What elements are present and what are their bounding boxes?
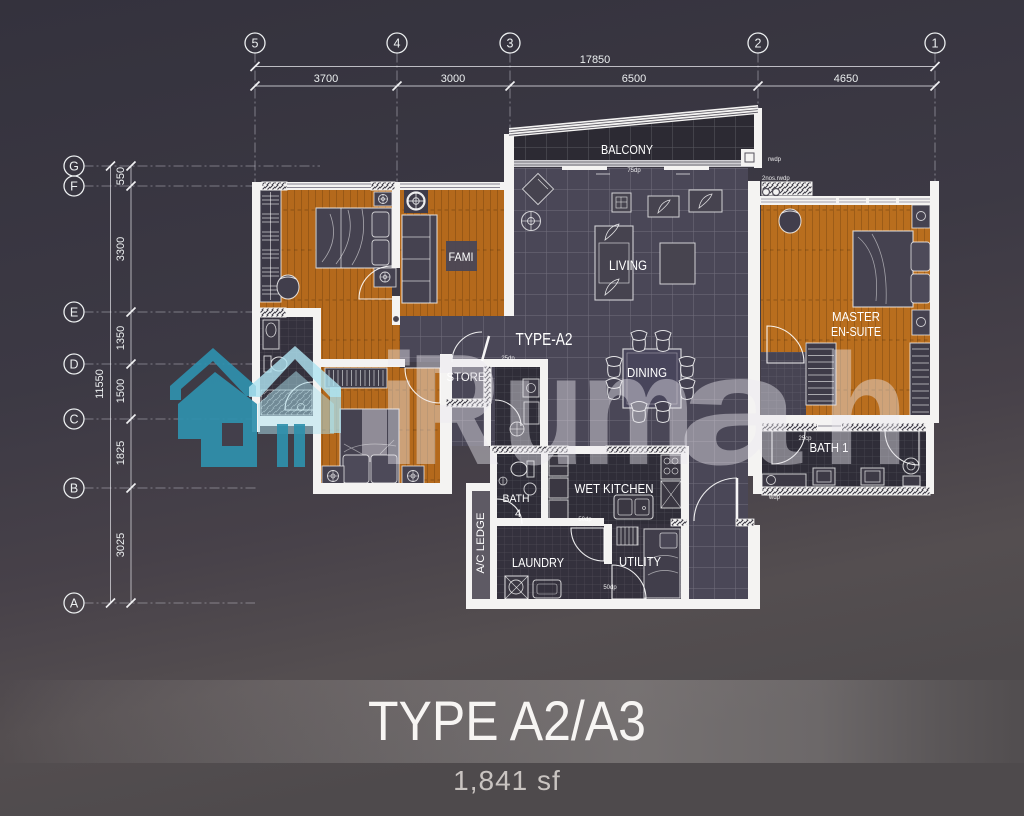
svg-text:LAUNDRY: LAUNDRY xyxy=(512,555,564,570)
svg-text:11550: 11550 xyxy=(94,369,106,399)
svg-text:A: A xyxy=(70,597,79,611)
svg-text:17850: 17850 xyxy=(580,54,611,66)
svg-text:D: D xyxy=(69,358,78,372)
svg-text:1: 1 xyxy=(932,37,939,51)
svg-text:a: a xyxy=(678,322,803,498)
svg-text:3025: 3025 xyxy=(115,533,127,557)
svg-text:6500: 6500 xyxy=(622,73,646,85)
svg-text:4: 4 xyxy=(515,508,521,520)
svg-text:5: 5 xyxy=(252,37,259,51)
svg-text:50dp: 50dp xyxy=(578,517,592,523)
svg-text:3: 3 xyxy=(507,37,514,51)
svg-text:3000: 3000 xyxy=(441,73,465,85)
svg-text:E: E xyxy=(70,306,78,320)
svg-text:2: 2 xyxy=(755,37,762,51)
svg-text:FAMI: FAMI xyxy=(449,252,474,264)
svg-text:UTILITY: UTILITY xyxy=(619,554,661,569)
svg-text:1,841 sf: 1,841 sf xyxy=(453,765,561,796)
svg-text:G: G xyxy=(69,160,79,174)
svg-text:550: 550 xyxy=(115,167,127,185)
svg-text:u: u xyxy=(502,322,585,498)
svg-text:1825: 1825 xyxy=(115,441,127,465)
svg-text:LIVING: LIVING xyxy=(609,258,647,273)
svg-text:TYPE A2/A3: TYPE A2/A3 xyxy=(368,689,646,752)
svg-text:R: R xyxy=(408,322,501,498)
svg-text:4: 4 xyxy=(394,37,401,51)
svg-text:1350: 1350 xyxy=(115,326,127,350)
svg-text:h: h xyxy=(822,322,908,498)
svg-text:F: F xyxy=(70,180,78,194)
svg-text:C: C xyxy=(69,413,78,427)
svg-text:3300: 3300 xyxy=(115,237,127,261)
svg-text:2nos.rwdp: 2nos.rwdp xyxy=(762,176,790,182)
svg-text:BALCONY: BALCONY xyxy=(601,142,653,157)
svg-text:rwdp: rwdp xyxy=(768,157,782,163)
svg-text:75dp: 75dp xyxy=(627,168,641,174)
svg-text:B: B xyxy=(70,482,78,496)
svg-text:1500: 1500 xyxy=(115,379,127,403)
svg-text:4650: 4650 xyxy=(834,73,858,85)
svg-text:50dp: 50dp xyxy=(603,585,617,591)
svg-text:3700: 3700 xyxy=(314,73,338,85)
svg-text:A/C LEDGE: A/C LEDGE xyxy=(475,513,487,574)
